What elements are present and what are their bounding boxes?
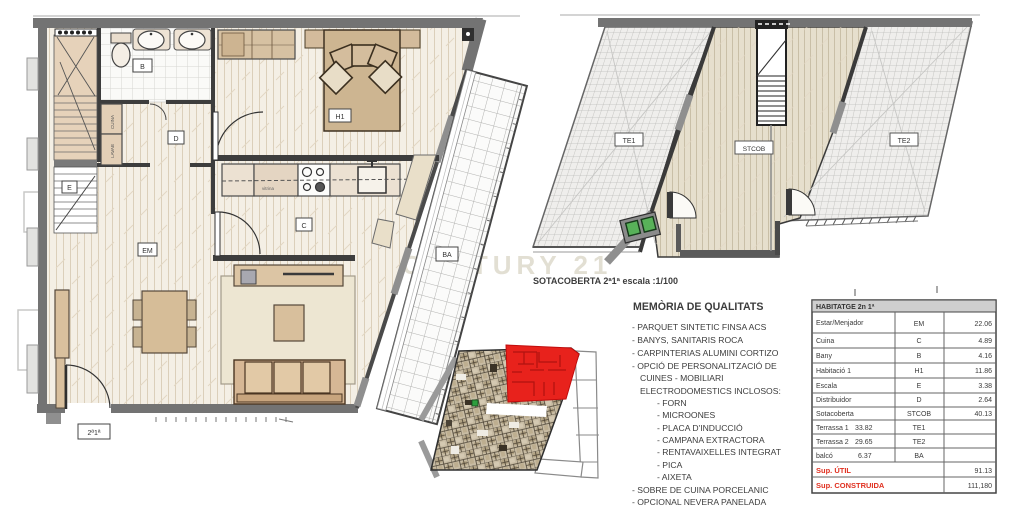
svg-text:H1: H1: [915, 368, 924, 375]
svg-text:Estar/Menjador: Estar/Menjador: [816, 320, 864, 327]
svg-text:H1: H1: [336, 114, 345, 121]
svg-text:6.37: 6.37: [858, 453, 872, 460]
svg-text:- FORN: - FORN: [657, 398, 687, 408]
svg-text:C: C: [916, 338, 921, 345]
svg-text:Escala: Escala: [816, 383, 837, 390]
svg-text:4.16: 4.16: [978, 353, 992, 360]
svg-text:11.86: 11.86: [975, 368, 992, 375]
svg-text:E: E: [67, 185, 72, 192]
svg-text:- OPCIÓ DE PERSONALITZACIÓ DE: - OPCIÓ DE PERSONALITZACIÓ DE: [632, 361, 777, 371]
svg-text:Sup. CONSTRUIDA: Sup. CONSTRUIDA: [816, 481, 885, 490]
svg-text:Terrassa 1: Terrassa 1: [816, 425, 849, 432]
svg-text:4.89: 4.89: [978, 338, 992, 345]
svg-text:2.64: 2.64: [978, 397, 992, 404]
svg-text:Habitació 1: Habitació 1: [816, 368, 851, 375]
svg-text:- BANYS, SANITARIS ROCA: - BANYS, SANITARIS ROCA: [632, 335, 743, 345]
svg-text:- PICA: - PICA: [657, 460, 683, 470]
svg-text:- RENTAVAIXELLES INTEGRAT: - RENTAVAIXELLES INTEGRAT: [657, 447, 782, 457]
svg-text:Distribuidor: Distribuidor: [816, 397, 852, 404]
svg-text:Cuina: Cuina: [816, 338, 834, 345]
svg-text:- PLACA D'INDUCCIÓ: - PLACA D'INDUCCIÓ: [657, 423, 743, 433]
svg-text:EM: EM: [914, 321, 925, 328]
svg-text:vitrina: vitrina: [262, 186, 275, 191]
svg-text:- SOBRE DE CUINA PORCELANIC: - SOBRE DE CUINA PORCELANIC: [632, 485, 769, 495]
svg-text:B: B: [917, 353, 922, 360]
svg-text:Terrassa 2: Terrassa 2: [816, 439, 849, 446]
svg-text:3.38: 3.38: [978, 383, 992, 390]
svg-text:2ª1ª: 2ª1ª: [88, 430, 101, 437]
svg-text:D: D: [916, 397, 921, 404]
svg-text:TE1: TE1: [913, 425, 926, 432]
svg-text:Sup. ÚTIL: Sup. ÚTIL: [816, 466, 851, 475]
svg-text:CUINES - MOBILIARI: CUINES - MOBILIARI: [640, 373, 724, 383]
svg-text:ELECTRODOMESTICS INCLOSOS:: ELECTRODOMESTICS INCLOSOS:: [640, 386, 781, 396]
svg-text:EM: EM: [142, 248, 153, 255]
svg-text:balcó: balcó: [816, 453, 833, 460]
svg-text:CUINA: CUINA: [110, 115, 115, 129]
svg-text:STCOB: STCOB: [743, 146, 765, 153]
svg-text:TE1: TE1: [623, 138, 636, 145]
svg-text:BA: BA: [914, 453, 924, 460]
svg-text:D: D: [173, 136, 178, 143]
svg-text:SOTACOBERTA 2ª1ª escala :1/100: SOTACOBERTA 2ª1ª escala :1/100: [533, 276, 678, 286]
svg-text:C: C: [301, 223, 306, 230]
svg-text:BA: BA: [442, 252, 452, 259]
svg-text:TE2: TE2: [898, 138, 911, 145]
svg-text:33.82: 33.82: [855, 425, 873, 432]
svg-text:40.13: 40.13: [974, 411, 992, 418]
svg-text:TE2: TE2: [913, 439, 926, 446]
svg-text:MEMÒRIA DE QUALITATS: MEMÒRIA DE QUALITATS: [633, 300, 763, 313]
svg-text:HABITATGE 2n 1ª: HABITATGE 2n 1ª: [816, 304, 875, 311]
svg-text:- AIXETA: - AIXETA: [657, 472, 692, 482]
svg-text:29.65: 29.65: [855, 439, 873, 446]
svg-text:B: B: [140, 64, 145, 71]
svg-text:- CAMPANA EXTRACTORA: - CAMPANA EXTRACTORA: [657, 435, 765, 445]
svg-text:Sotacoberta: Sotacoberta: [816, 411, 854, 418]
svg-text:LAVAB: LAVAB: [110, 144, 115, 158]
svg-text:- MICROONES: - MICROONES: [657, 410, 716, 420]
svg-text:Bany: Bany: [816, 353, 832, 360]
svg-text:111,180: 111,180: [968, 483, 992, 490]
svg-text:- OPCIONAL NEVERA PANELADA: - OPCIONAL NEVERA PANELADA: [632, 497, 766, 507]
svg-text:- PARQUET SINTETIC FINSA ACS: - PARQUET SINTETIC FINSA ACS: [632, 322, 767, 332]
svg-text:- CARPINTERIAS ALUMINI CORTIZO: - CARPINTERIAS ALUMINI CORTIZO: [632, 348, 779, 358]
svg-text:91.13: 91.13: [974, 468, 992, 475]
svg-text:STCOB: STCOB: [907, 411, 931, 418]
svg-text:E: E: [917, 383, 922, 390]
svg-text:22.06: 22.06: [974, 321, 992, 328]
